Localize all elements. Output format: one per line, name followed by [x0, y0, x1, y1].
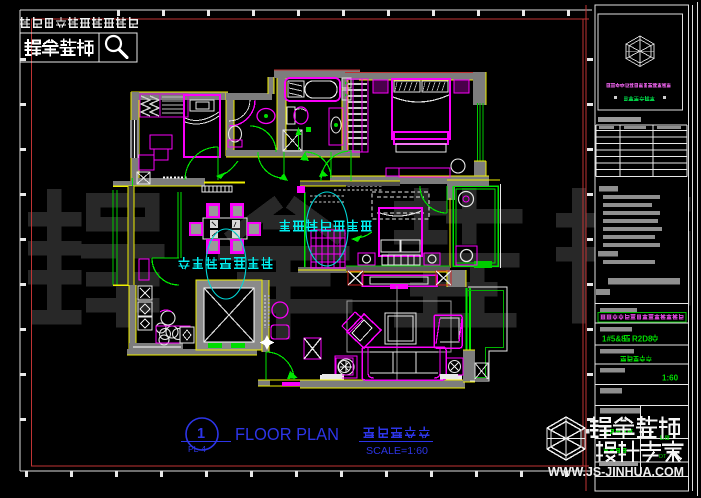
svg-text:1#5&8: 1#5&8	[602, 335, 626, 344]
svg-text:PL-4: PL-4	[188, 444, 206, 454]
svg-text:SCALE=1:60: SCALE=1:60	[366, 446, 428, 457]
svg-text:FLOOR PLAN: FLOOR PLAN	[235, 424, 339, 444]
svg-text:1: 1	[197, 426, 205, 442]
svg-text:WWW.JS-JINHUA.COM: WWW.JS-JINHUA.COM	[548, 464, 684, 479]
svg-text:R2D8: R2D8	[632, 335, 653, 344]
svg-text:1:60: 1:60	[662, 374, 679, 383]
svg-text:DT: DT	[659, 454, 667, 460]
